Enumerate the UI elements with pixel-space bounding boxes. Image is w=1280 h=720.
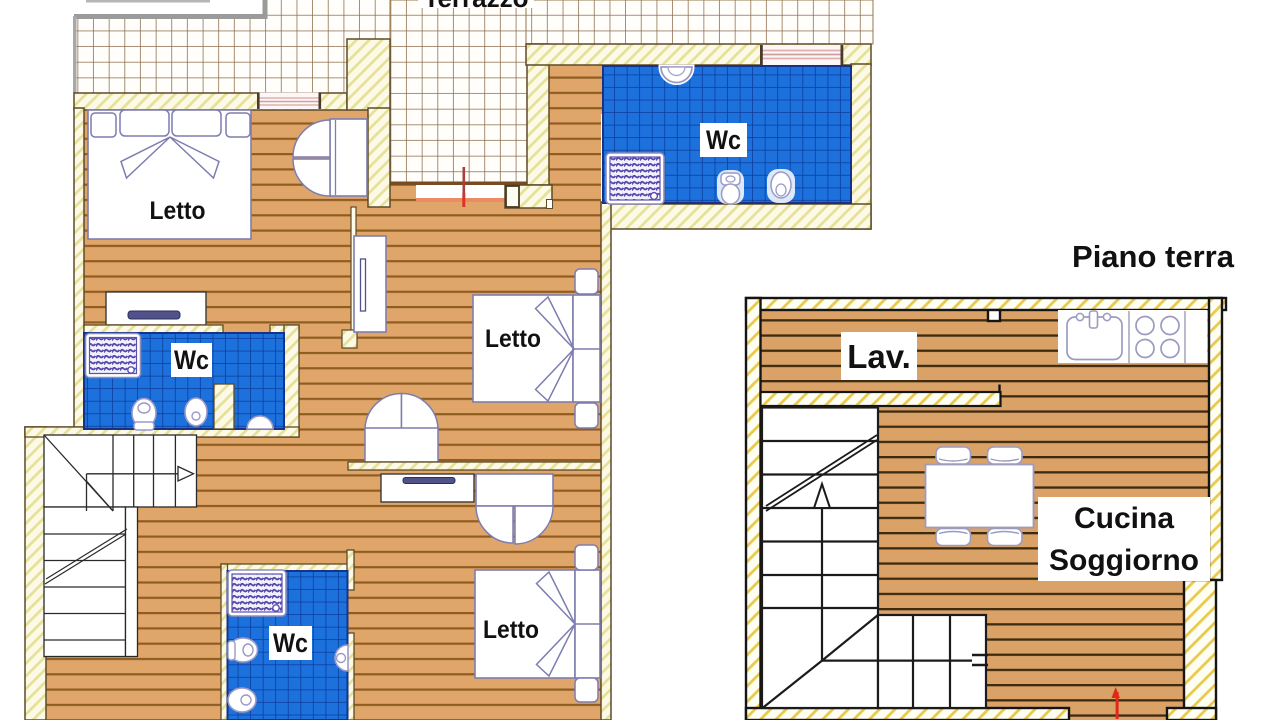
svg-text:Soggiorno: Soggiorno xyxy=(1049,544,1199,577)
svg-text:Wc: Wc xyxy=(174,345,209,375)
svg-text:Wc: Wc xyxy=(273,628,308,658)
svg-text:Terrazzo: Terrazzo xyxy=(424,0,529,13)
svg-text:Letto: Letto xyxy=(483,616,539,644)
svg-text:Wc: Wc xyxy=(706,125,741,155)
svg-text:Lav.: Lav. xyxy=(847,338,911,375)
svg-text:Piano terra: Piano terra xyxy=(1072,239,1235,274)
svg-text:Letto: Letto xyxy=(485,325,541,353)
svg-text:Letto: Letto xyxy=(150,197,206,225)
svg-text:Cucina: Cucina xyxy=(1074,502,1174,535)
